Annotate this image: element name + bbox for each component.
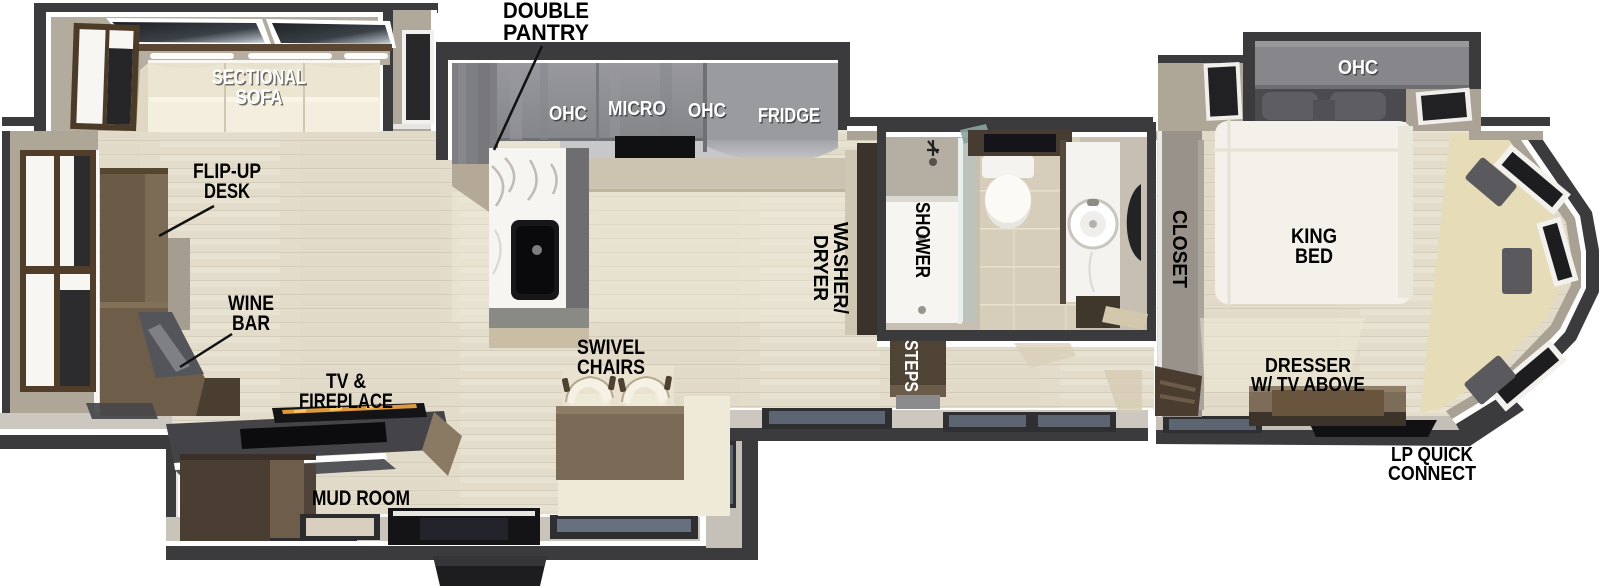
svg-text:DESK: DESK — [204, 180, 250, 203]
svg-text:DRYER: DRYER — [809, 235, 831, 302]
svg-text:SOFA: SOFA — [236, 86, 283, 109]
svg-text:OHC: OHC — [1338, 57, 1378, 79]
svg-text:MICRO: MICRO — [608, 98, 666, 120]
svg-text:SHOWER: SHOWER — [911, 202, 933, 278]
svg-text:BAR: BAR — [232, 312, 270, 335]
svg-text:CONNECT: CONNECT — [1388, 463, 1476, 485]
svg-text:OHC: OHC — [688, 100, 726, 122]
svg-text:W/ TV ABOVE: W/ TV ABOVE — [1251, 374, 1365, 396]
svg-text:CHAIRS: CHAIRS — [577, 356, 645, 379]
svg-text:OHC: OHC — [549, 103, 587, 125]
svg-text:STEPS: STEPS — [901, 340, 921, 392]
svg-text:FRIDGE: FRIDGE — [758, 105, 820, 127]
svg-text:MUD ROOM: MUD ROOM — [312, 487, 410, 510]
svg-text:CLOSET: CLOSET — [1168, 210, 1190, 288]
svg-text:FIREPLACE: FIREPLACE — [299, 390, 393, 413]
svg-text:BED: BED — [1295, 245, 1333, 268]
svg-text:PANTRY: PANTRY — [503, 20, 589, 45]
svg-text:WASHER/: WASHER/ — [829, 222, 851, 314]
